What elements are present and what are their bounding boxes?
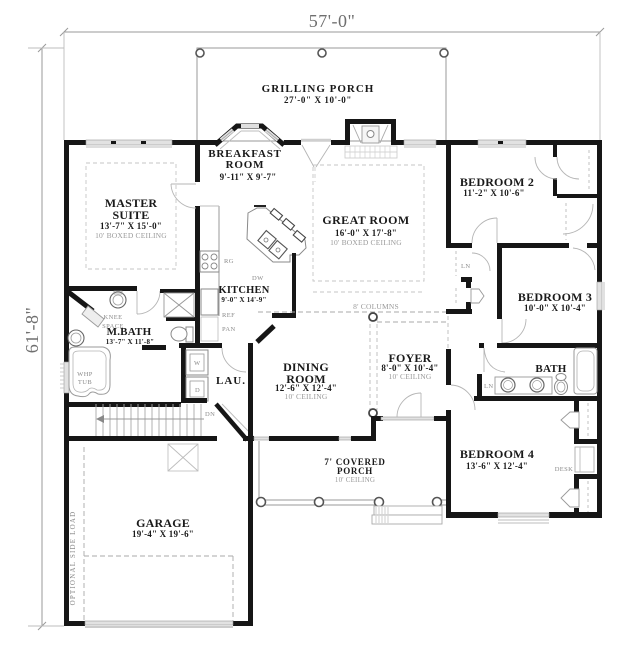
svg-text:13'-6" X 12'-4": 13'-6" X 12'-4" xyxy=(466,461,528,471)
svg-text:W: W xyxy=(194,360,201,367)
svg-text:13'-7" X 11'-8": 13'-7" X 11'-8" xyxy=(106,338,155,346)
svg-text:61'-8": 61'-8" xyxy=(22,307,42,354)
svg-text:57'-0": 57'-0" xyxy=(309,11,356,31)
svg-text:GREAT ROOM: GREAT ROOM xyxy=(322,213,409,227)
svg-text:13'-7" X 15'-0": 13'-7" X 15'-0" xyxy=(100,221,162,231)
svg-text:DW: DW xyxy=(252,275,264,282)
svg-text:SUITE: SUITE xyxy=(112,208,149,222)
svg-text:9'-0" X 14'-9": 9'-0" X 14'-9" xyxy=(221,296,266,304)
svg-text:WHP: WHP xyxy=(77,371,93,378)
svg-text:BEDROOM 3: BEDROOM 3 xyxy=(518,290,592,304)
svg-text:10' BOXED CEILING: 10' BOXED CEILING xyxy=(95,231,167,240)
svg-text:KNEE: KNEE xyxy=(104,314,123,321)
svg-text:27'-0" X 10'-0": 27'-0" X 10'-0" xyxy=(284,95,352,105)
svg-text:10' CEILING: 10' CEILING xyxy=(285,392,328,401)
svg-text:DESK: DESK xyxy=(555,466,574,473)
svg-text:10' CEILING: 10' CEILING xyxy=(389,372,432,381)
svg-text:TUB: TUB xyxy=(78,379,92,386)
svg-text:19'-4" X 19'-6": 19'-4" X 19'-6" xyxy=(132,529,194,539)
svg-text:10'-0" X 10'-4": 10'-0" X 10'-4" xyxy=(524,303,586,313)
svg-text:DN: DN xyxy=(205,411,215,418)
svg-text:9'-11" X 9'-7": 9'-11" X 9'-7" xyxy=(220,172,277,182)
svg-text:10' CEILING: 10' CEILING xyxy=(335,476,375,484)
svg-text:PORCH: PORCH xyxy=(337,466,373,476)
svg-text:LAU.: LAU. xyxy=(216,375,246,387)
svg-text:OPTIONAL SIDE LOAD: OPTIONAL SIDE LOAD xyxy=(69,511,77,606)
svg-text:8' COLUMNS: 8' COLUMNS xyxy=(353,302,399,311)
svg-text:10' BOXED CEILING: 10' BOXED CEILING xyxy=(330,238,402,247)
svg-text:GARAGE: GARAGE xyxy=(136,516,190,530)
svg-text:BEDROOM 2: BEDROOM 2 xyxy=(460,175,534,189)
svg-text:11'-2" X 10'-6": 11'-2" X 10'-6" xyxy=(463,188,525,198)
svg-text:ROOM: ROOM xyxy=(226,159,265,171)
svg-text:RG: RG xyxy=(224,258,234,265)
svg-text:LN: LN xyxy=(484,383,493,390)
svg-text:D: D xyxy=(195,387,200,394)
svg-text:16'-0" X 17'-8": 16'-0" X 17'-8" xyxy=(335,228,397,238)
svg-text:PAN: PAN xyxy=(222,326,236,333)
svg-text:LN: LN xyxy=(461,263,470,270)
svg-text:GRILLING PORCH: GRILLING PORCH xyxy=(262,83,375,95)
svg-text:SPACE: SPACE xyxy=(102,323,124,330)
svg-text:BEDROOM 4: BEDROOM 4 xyxy=(460,447,534,461)
svg-text:REF: REF xyxy=(222,312,235,319)
svg-text:KITCHEN: KITCHEN xyxy=(219,285,270,296)
